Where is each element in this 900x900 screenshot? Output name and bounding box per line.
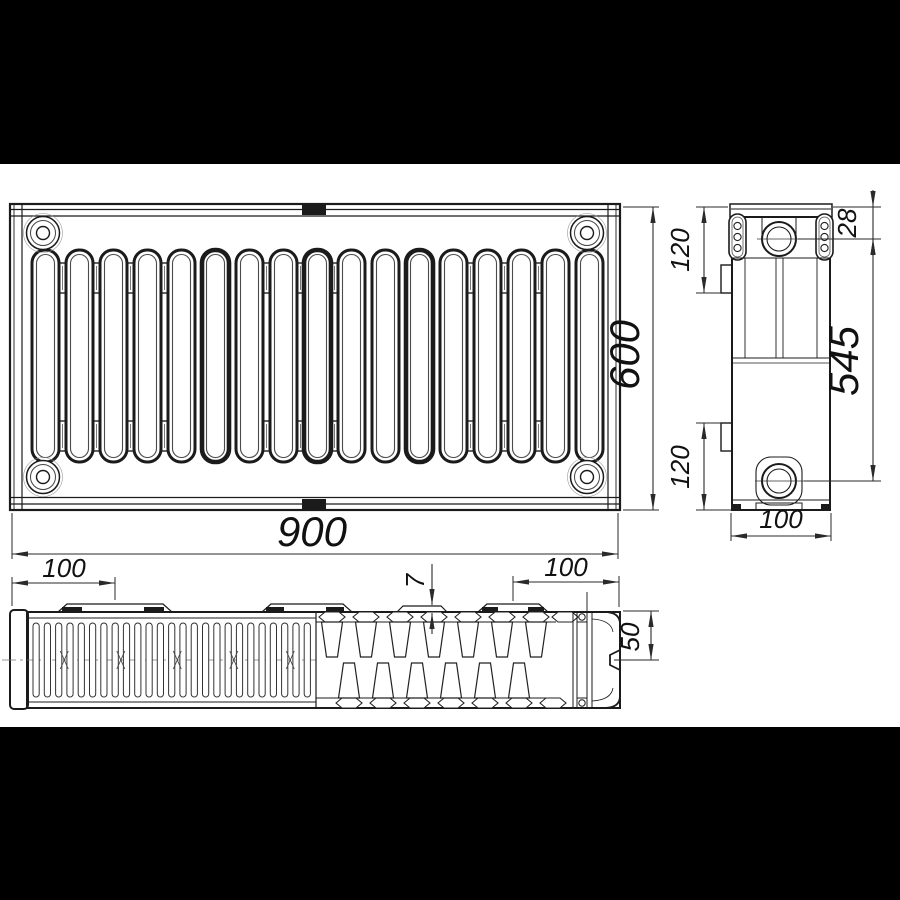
radiator-drawing-canvas: 900 600 120 28 545 120 100 [0,0,900,900]
letterbox-top [0,0,900,164]
dim-label-top-port-offset: 28 [832,208,862,238]
dim-label-tab-height: 7 [400,572,430,588]
technical-drawing: 900 600 120 28 545 120 100 [0,0,900,900]
side-corner-plug-right [816,214,833,260]
dim-label-front-width: 900 [277,508,348,555]
side-corner-plug-left [729,214,746,260]
dim-label-port-spacing: 545 [820,325,867,396]
dim-label-front-height: 600 [601,319,648,390]
dim-label-depth: 100 [759,504,803,534]
dim-label-half-depth: 50 [615,622,645,651]
dim-label-lower-bracket: 120 [665,445,695,489]
dim-label-upper-bracket: 120 [665,228,695,272]
dim-label-left-tab-offset: 100 [42,553,86,583]
panel-ribs [32,250,603,462]
letterbox-bottom [0,727,900,900]
top-vent-tab [302,205,326,215]
dim-label-right-tab-offset: 100 [544,552,588,582]
